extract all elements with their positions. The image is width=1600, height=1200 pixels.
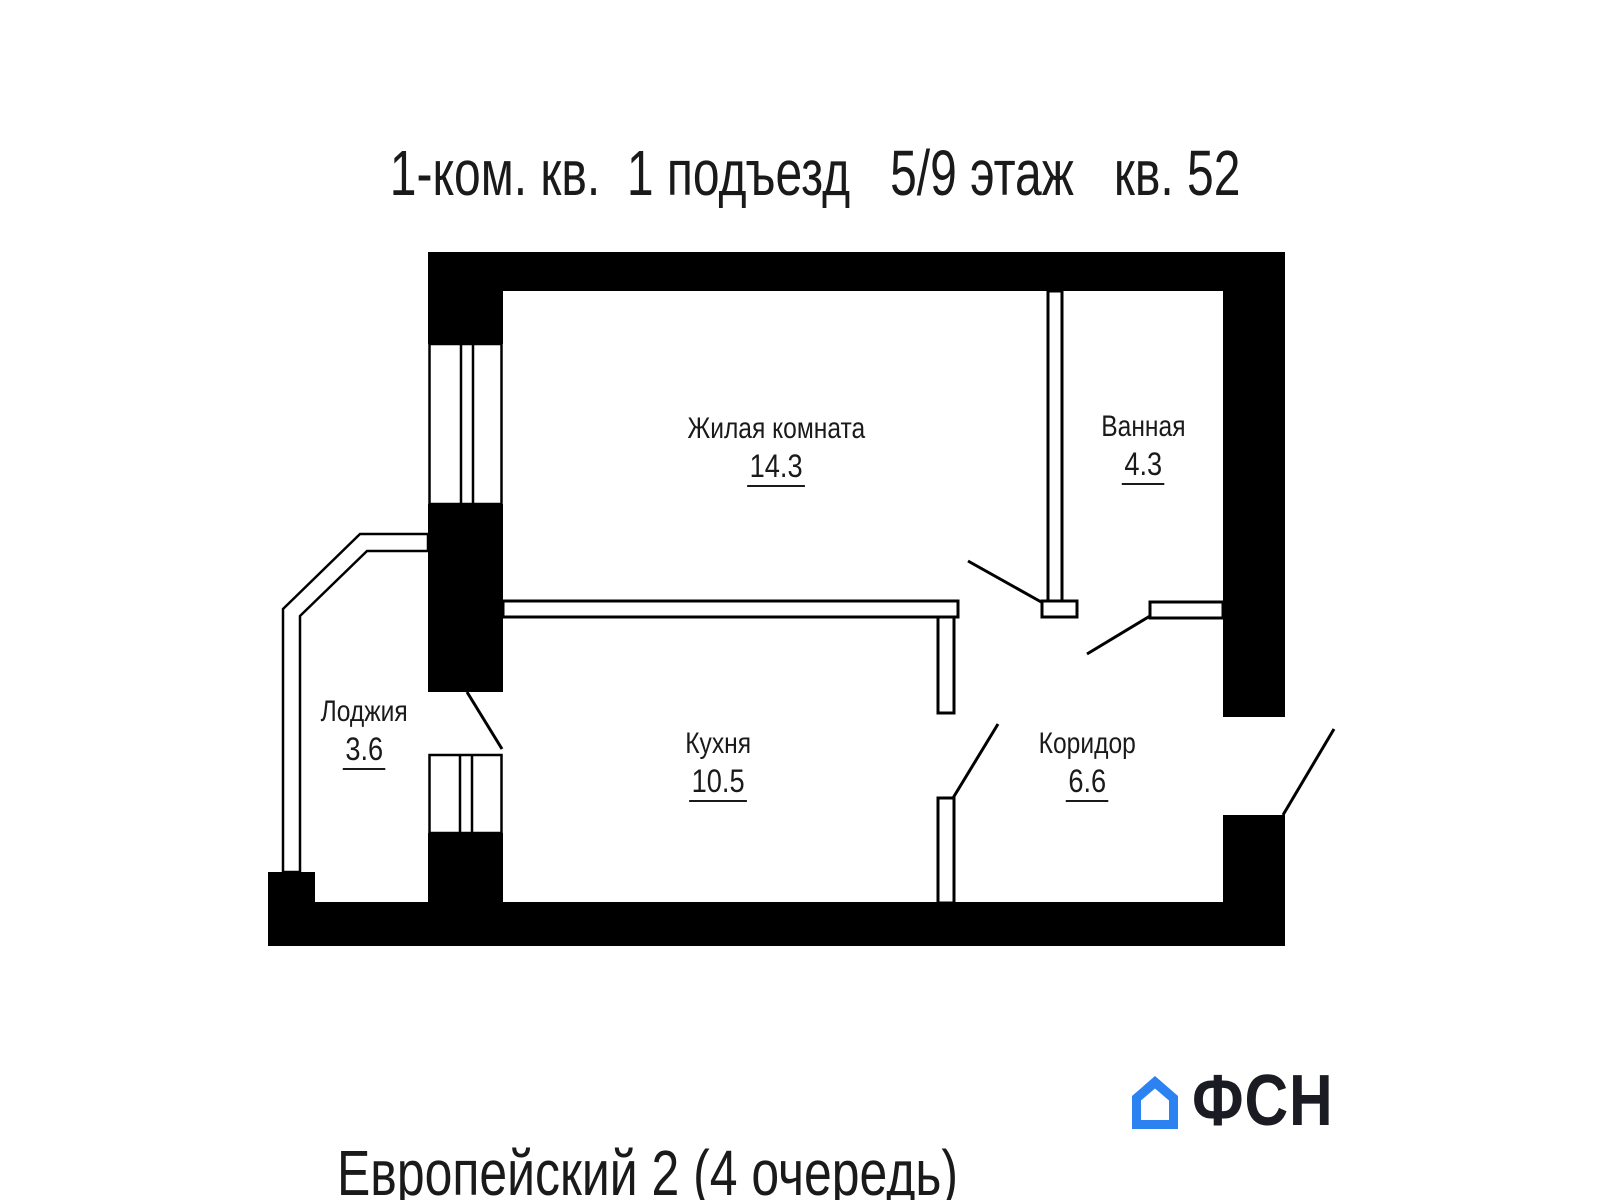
- floor-plan-page: 1-ком. кв. 1 подъезд 5/9 этаж кв. 52: [0, 0, 1600, 1200]
- living-room-window: [430, 344, 502, 504]
- room-label-loggia: Лоджия 3.6: [214, 696, 514, 770]
- wall-bottom: [268, 902, 1285, 946]
- project-name: Европейский 2 (4 очередь): [266, 1062, 1133, 1200]
- room-area: 3.6: [214, 733, 514, 770]
- bathroom-door-leaf: [1087, 616, 1150, 654]
- room-area: 6.6: [937, 765, 1237, 802]
- wall-left-mid-block: [428, 504, 503, 692]
- room-area: 10.5: [568, 765, 868, 802]
- room-name: Ванная: [993, 411, 1293, 443]
- floor-plan: [0, 0, 1600, 1200]
- brand-logo: ФСН: [1132, 1072, 1360, 1130]
- partition-corridor-right: [1150, 602, 1223, 618]
- wall-bottom-left-block: [268, 872, 315, 904]
- room-name: Жилая комната: [626, 413, 926, 445]
- room-label-corridor: Коридор 6.6: [937, 728, 1237, 802]
- partition-kitchen-corridor-lower: [938, 798, 954, 903]
- brand-name: ФСН: [1192, 1072, 1360, 1130]
- room-name: Коридор: [937, 728, 1237, 760]
- room-area: 4.3: [993, 448, 1293, 485]
- room-area: 14.3: [626, 450, 926, 487]
- house-icon: [1132, 1076, 1178, 1129]
- outer-walls: [268, 252, 1285, 946]
- room-label-living-room: Жилая комната 14.3: [626, 413, 926, 487]
- partitions: [503, 291, 1223, 903]
- room-label-bathroom: Ванная 4.3: [993, 411, 1293, 485]
- wall-left-lower-block: [428, 833, 503, 903]
- wall-top: [428, 252, 1285, 291]
- room-name: Кухня: [568, 728, 868, 760]
- partition-bathroom-flange: [1042, 601, 1077, 617]
- room-name: Лоджия: [214, 696, 514, 728]
- partition-living-kitchen: [503, 601, 958, 617]
- living-room-door-leaf: [968, 561, 1043, 603]
- partition-kitchen-corridor-upper: [938, 617, 954, 713]
- wall-left-corner-block: [428, 252, 503, 344]
- room-label-kitchen: Кухня 10.5: [568, 728, 868, 802]
- entrance-door-leaf: [1283, 729, 1334, 815]
